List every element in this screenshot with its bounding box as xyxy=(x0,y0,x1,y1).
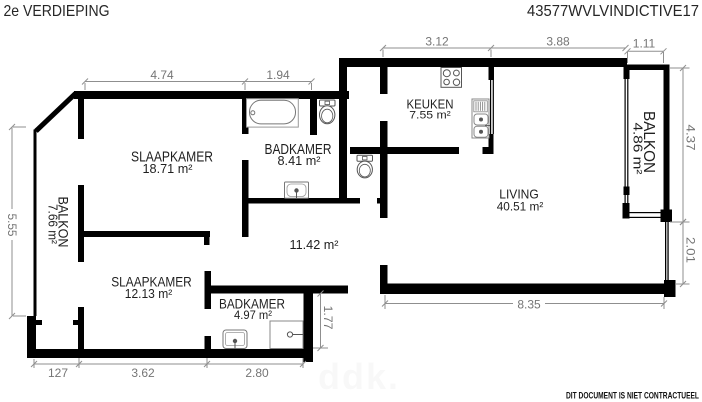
svg-text:1.94: 1.94 xyxy=(266,68,290,82)
svg-text:2.01: 2.01 xyxy=(684,237,698,263)
svg-text:4.74: 4.74 xyxy=(150,68,174,82)
svg-text:43577WVLVINDICTIVE17: 43577WVLVINDICTIVE17 xyxy=(527,3,699,20)
svg-text:8.35: 8.35 xyxy=(517,298,541,312)
svg-text:5.55: 5.55 xyxy=(5,214,19,237)
svg-text:12.13 m²: 12.13 m² xyxy=(125,287,173,301)
svg-text:1.11: 1.11 xyxy=(633,37,656,51)
svg-text:3.88: 3.88 xyxy=(546,35,570,49)
svg-text:DIT DOCUMENT IS NIET CONTRACTU: DIT DOCUMENT IS NIET CONTRACTUEEL xyxy=(566,391,699,402)
svg-text:18.71 m²: 18.71 m² xyxy=(143,162,193,176)
svg-text:11.42 m²: 11.42 m² xyxy=(290,238,339,252)
svg-text:2.80: 2.80 xyxy=(245,366,269,380)
svg-text:8.41 m²: 8.41 m² xyxy=(278,154,321,168)
svg-text:4.86 m²: 4.86 m² xyxy=(631,123,646,176)
svg-text:4.97 m²: 4.97 m² xyxy=(234,308,272,322)
svg-text:7.55 m²: 7.55 m² xyxy=(409,110,451,122)
svg-text:3.12: 3.12 xyxy=(425,35,449,49)
svg-text:127: 127 xyxy=(48,366,68,380)
svg-text:7.66 m²: 7.66 m² xyxy=(46,204,60,244)
svg-text:ddk.: ddk. xyxy=(318,356,400,397)
svg-text:1.77: 1.77 xyxy=(321,306,335,330)
svg-text:3.62: 3.62 xyxy=(131,366,155,380)
svg-text:2e VERDIEPING: 2e VERDIEPING xyxy=(4,3,110,20)
svg-text:4.37: 4.37 xyxy=(684,125,698,151)
svg-text:40.51 m²: 40.51 m² xyxy=(497,200,544,214)
